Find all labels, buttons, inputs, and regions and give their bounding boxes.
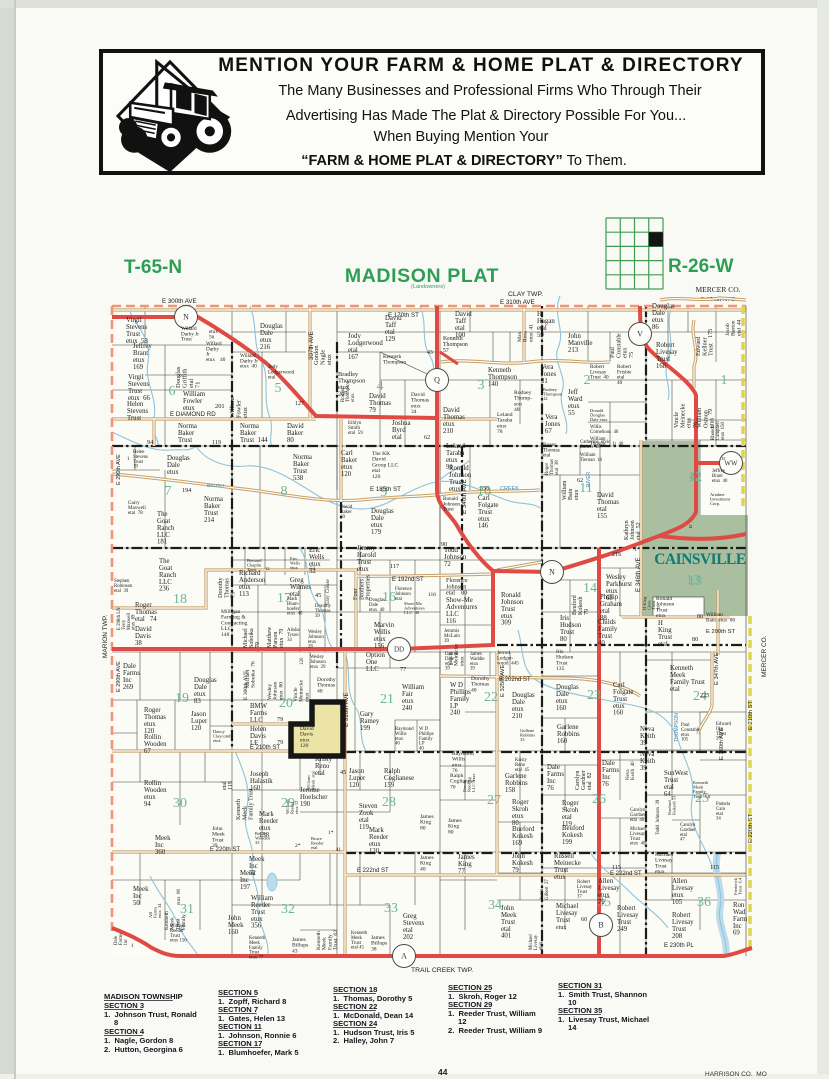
svg-text:tr: tr xyxy=(688,524,694,528)
svg-text:FlorenceJohnsonetal 80: FlorenceJohnsonetal 80 xyxy=(446,577,468,597)
svg-text:MERCER CO.: MERCER CO. xyxy=(695,285,740,294)
svg-text:SECTION 17: SECTION 17 xyxy=(218,1039,262,1048)
svg-text:E 310th AVE: E 310th AVE xyxy=(343,692,350,727)
svg-text:79: 79 xyxy=(277,716,283,723)
svg-text:E 220th ST: E 220th ST xyxy=(210,847,240,853)
svg-text:1: 1 xyxy=(131,943,134,949)
svg-text:45: 45 xyxy=(340,769,346,776)
svg-text:94: 94 xyxy=(147,439,153,446)
svg-text:22: 22 xyxy=(484,690,498,705)
svg-text:(Landowners): (Landowners) xyxy=(411,284,445,290)
svg-text:SECTION 3: SECTION 3 xyxy=(104,1001,144,1010)
svg-text:SECTION 35: SECTION 35 xyxy=(558,1006,603,1015)
svg-text:194: 194 xyxy=(182,487,191,494)
svg-text:30: 30 xyxy=(173,796,187,811)
svg-text:116: 116 xyxy=(428,592,436,598)
svg-text:356: 356 xyxy=(480,485,489,492)
svg-text:E 347th AVE: E 347th AVE xyxy=(714,652,720,685)
svg-text:etux: etux xyxy=(556,925,566,931)
svg-text:80: 80 xyxy=(692,636,698,643)
svg-text:90: 90 xyxy=(441,541,447,548)
svg-text:E 340th AVE: E 340th AVE xyxy=(461,479,468,514)
svg-text:41: 41 xyxy=(336,848,342,853)
svg-text:RIVER: RIVER xyxy=(586,471,592,487)
svg-text:1*: 1* xyxy=(328,830,334,836)
svg-text:117: 117 xyxy=(390,563,399,570)
svg-text:E 222nd ST: E 222nd ST xyxy=(357,868,389,874)
svg-text:33: 33 xyxy=(384,901,398,916)
svg-text:CarolynGardneretal 82: CarolynGardneretal 82 xyxy=(575,770,593,790)
svg-text:N: N xyxy=(183,313,189,322)
svg-text:CREEK: CREEK xyxy=(500,486,519,492)
svg-text:E 290th AVE: E 290th AVE xyxy=(116,454,122,485)
svg-text:Advertising Has Made The Plat: Advertising Has Made The Plat & Director… xyxy=(286,108,686,124)
svg-text:E 230th PL: E 230th PL xyxy=(664,943,694,949)
svg-text:34: 34 xyxy=(488,898,502,913)
svg-text:43: 43 xyxy=(427,350,433,356)
svg-text:E 170th ST: E 170th ST xyxy=(388,312,419,319)
svg-text:8: 8 xyxy=(281,484,288,499)
svg-text:TRAIL CREEK TWP.: TRAIL CREEK TWP. xyxy=(411,967,473,974)
svg-text:E 210th ST: E 210th ST xyxy=(250,745,280,751)
svg-text:KathrynJohnsonetal 52: KathrynJohnsonetal 52 xyxy=(624,520,642,540)
svg-text:60: 60 xyxy=(581,916,587,923)
svg-text:119: 119 xyxy=(212,439,221,446)
svg-text:8: 8 xyxy=(114,1018,118,1027)
svg-text:BRUSH: BRUSH xyxy=(207,483,224,489)
svg-text:23: 23 xyxy=(587,688,601,703)
svg-text:28: 28 xyxy=(382,795,396,810)
svg-text:SECTION 25: SECTION 25 xyxy=(448,983,493,992)
svg-text:19: 19 xyxy=(175,691,189,706)
svg-text:5: 5 xyxy=(275,381,282,396)
svg-text:N: N xyxy=(549,568,555,577)
svg-text:HARRISON CO. MO: HARRISON CO. MO xyxy=(705,1071,767,1078)
svg-text:201: 201 xyxy=(215,403,225,410)
svg-text:SECTION 24: SECTION 24 xyxy=(333,1019,378,1028)
svg-text:THOMPSON: THOMPSON xyxy=(674,713,680,742)
svg-text:E 290th AVE: E 290th AVE xyxy=(116,661,122,692)
svg-text:CAINSVILLE: CAINSVILLE xyxy=(654,551,746,568)
svg-text:SECTION 5: SECTION 5 xyxy=(218,988,259,997)
svg-text:E 210th ST: E 210th ST xyxy=(748,701,754,730)
svg-text:13: 13 xyxy=(688,574,702,589)
svg-text:SECTION 4: SECTION 4 xyxy=(104,1027,145,1036)
svg-text:62: 62 xyxy=(424,434,430,441)
svg-text:115: 115 xyxy=(612,864,621,871)
svg-text:SECTION 11: SECTION 11 xyxy=(218,1022,263,1031)
svg-text:Gary Crouse: Gary Crouse xyxy=(326,579,331,605)
svg-text:80: 80 xyxy=(697,614,703,620)
svg-text:45: 45 xyxy=(315,592,321,599)
svg-text:1: 1 xyxy=(721,373,728,388)
svg-text:42: 42 xyxy=(689,469,701,483)
svg-text:12: 12 xyxy=(265,566,270,571)
svg-text:12: 12 xyxy=(458,1017,466,1026)
svg-text:SECTION 22: SECTION 22 xyxy=(333,1002,377,1011)
svg-text:2*: 2* xyxy=(295,843,301,849)
svg-text:53: 53 xyxy=(310,567,316,572)
svg-text:18: 18 xyxy=(173,592,187,607)
svg-text:MENTION YOUR FARM & HOME PLAT: MENTION YOUR FARM & HOME PLAT & DIRECTOR… xyxy=(218,55,744,76)
svg-text:120: 120 xyxy=(300,657,305,665)
svg-text:SECTION 18: SECTION 18 xyxy=(333,985,377,994)
svg-text:MARION TWP.: MARION TWP. xyxy=(102,615,109,658)
svg-text:2. Halley, John 7: 2. Halley, John 7 xyxy=(333,1036,394,1045)
svg-text:E 325th AVE: E 325th AVE xyxy=(500,664,506,697)
svg-text:27: 27 xyxy=(487,793,501,808)
svg-text:tr: tr xyxy=(722,456,726,462)
svg-text:E 185th ST: E 185th ST xyxy=(370,486,401,493)
svg-text:79: 79 xyxy=(708,409,714,415)
svg-text:32: 32 xyxy=(281,902,295,917)
svg-text:SECTION 31: SECTION 31 xyxy=(558,981,603,990)
svg-text:127: 127 xyxy=(295,401,304,407)
svg-text:E 200th ST: E 200th ST xyxy=(706,629,735,635)
svg-text:T-65-N: T-65-N xyxy=(124,257,182,278)
svg-text:115: 115 xyxy=(710,864,719,871)
svg-text:WesleyJohnsonetux 80: WesleyJohnsonetux 80 xyxy=(267,681,284,700)
svg-text:1*: 1* xyxy=(634,547,640,553)
svg-text:MichaelLivesayTrustetux 40: MichaelLivesayTrustetux 40 xyxy=(630,827,646,847)
svg-text:WesleyJohnsonetux 29: WesleyJohnsonetux 29 xyxy=(310,655,326,670)
svg-text:B: B xyxy=(598,921,603,930)
svg-text:CLAY TWP.: CLAY TWP. xyxy=(508,291,543,298)
svg-text:E 310th AVE: E 310th AVE xyxy=(500,299,535,306)
svg-text:E 300th AVE: E 300th AVE xyxy=(243,670,249,700)
svg-text:225: 225 xyxy=(700,692,709,699)
svg-text:FrederickTrust 6.4: FrederickTrust 6.4 xyxy=(733,877,743,895)
svg-text:WW: WW xyxy=(724,460,738,468)
svg-text:1. Blumhoefer, Mark 5: 1. Blumhoefer, Mark 5 xyxy=(218,1048,299,1057)
svg-text:DD: DD xyxy=(394,646,404,654)
svg-text:175: 175 xyxy=(707,329,714,338)
svg-text:WillardDarby Jretux 40: WillardDarby Jretux 40 xyxy=(240,353,258,370)
svg-text:MERCER CO.: MERCER CO. xyxy=(761,635,768,677)
svg-text:14: 14 xyxy=(568,1023,577,1032)
svg-text:4: 4 xyxy=(377,379,384,394)
svg-text:21: 21 xyxy=(380,692,394,707)
svg-text:14: 14 xyxy=(583,581,597,596)
svg-text:V: V xyxy=(637,330,643,339)
svg-text:2. Reeder Trust, William 9: 2. Reeder Trust, William 9 xyxy=(448,1026,542,1035)
svg-text:When Buying Mention Your: When Buying Mention Your xyxy=(374,129,549,145)
svg-text:MADISON TOWNSHIP: MADISON TOWNSHIP xyxy=(104,992,183,1001)
svg-text:E 222nd ST: E 222nd ST xyxy=(610,871,642,877)
svg-text:7: 7 xyxy=(165,484,172,499)
svg-text:77: 77 xyxy=(400,666,406,673)
svg-text:SECTION 29: SECTION 29 xyxy=(448,1000,492,1009)
svg-text:36: 36 xyxy=(697,895,711,910)
svg-text:E 220th ST: E 220th ST xyxy=(748,814,754,843)
svg-text:1. Nagle, Gordon 8: 1. Nagle, Gordon 8 xyxy=(104,1036,173,1045)
svg-text:SECTION 7: SECTION 7 xyxy=(218,1005,258,1014)
svg-text:26: 26 xyxy=(592,792,606,807)
svg-text:R-26-W: R-26-W xyxy=(668,256,734,277)
svg-text:CarolynGardneretal 40: CarolynGardneretal 40 xyxy=(630,808,646,823)
svg-text:Todd Johnson 39: Todd Johnson 39 xyxy=(656,799,661,835)
svg-text:62: 62 xyxy=(577,477,583,484)
svg-text:307th AVE: 307th AVE xyxy=(308,331,315,360)
svg-text:A: A xyxy=(401,952,407,961)
svg-text:E 360th AVE: E 360th AVE xyxy=(719,727,725,760)
svg-text:44: 44 xyxy=(438,1067,448,1077)
svg-text:The Many Businesses and Profes: The Many Businesses and Professional Fir… xyxy=(278,83,702,99)
svg-text:E DIAMOND RD: E DIAMOND RD xyxy=(170,411,216,418)
svg-text:3: 3 xyxy=(478,378,485,393)
svg-text:Q: Q xyxy=(434,376,440,385)
svg-text:“FARM & HOME PLAT & DIRECTORY”: “FARM & HOME PLAT & DIRECTORY” To Them. xyxy=(301,153,627,169)
svg-text:E 300th AVE: E 300th AVE xyxy=(162,298,197,305)
svg-text:etux 80: etux 80 xyxy=(177,888,182,905)
svg-text:216: 216 xyxy=(612,551,621,558)
svg-text:2. Hutton, Georgina 6: 2. Hutton, Georgina 6 xyxy=(104,1045,183,1054)
svg-text:E 346th AVE: E 346th AVE xyxy=(635,557,642,592)
svg-text:E 192nd ST: E 192nd ST xyxy=(392,577,424,583)
svg-text:etal119: etal119 xyxy=(222,781,234,790)
